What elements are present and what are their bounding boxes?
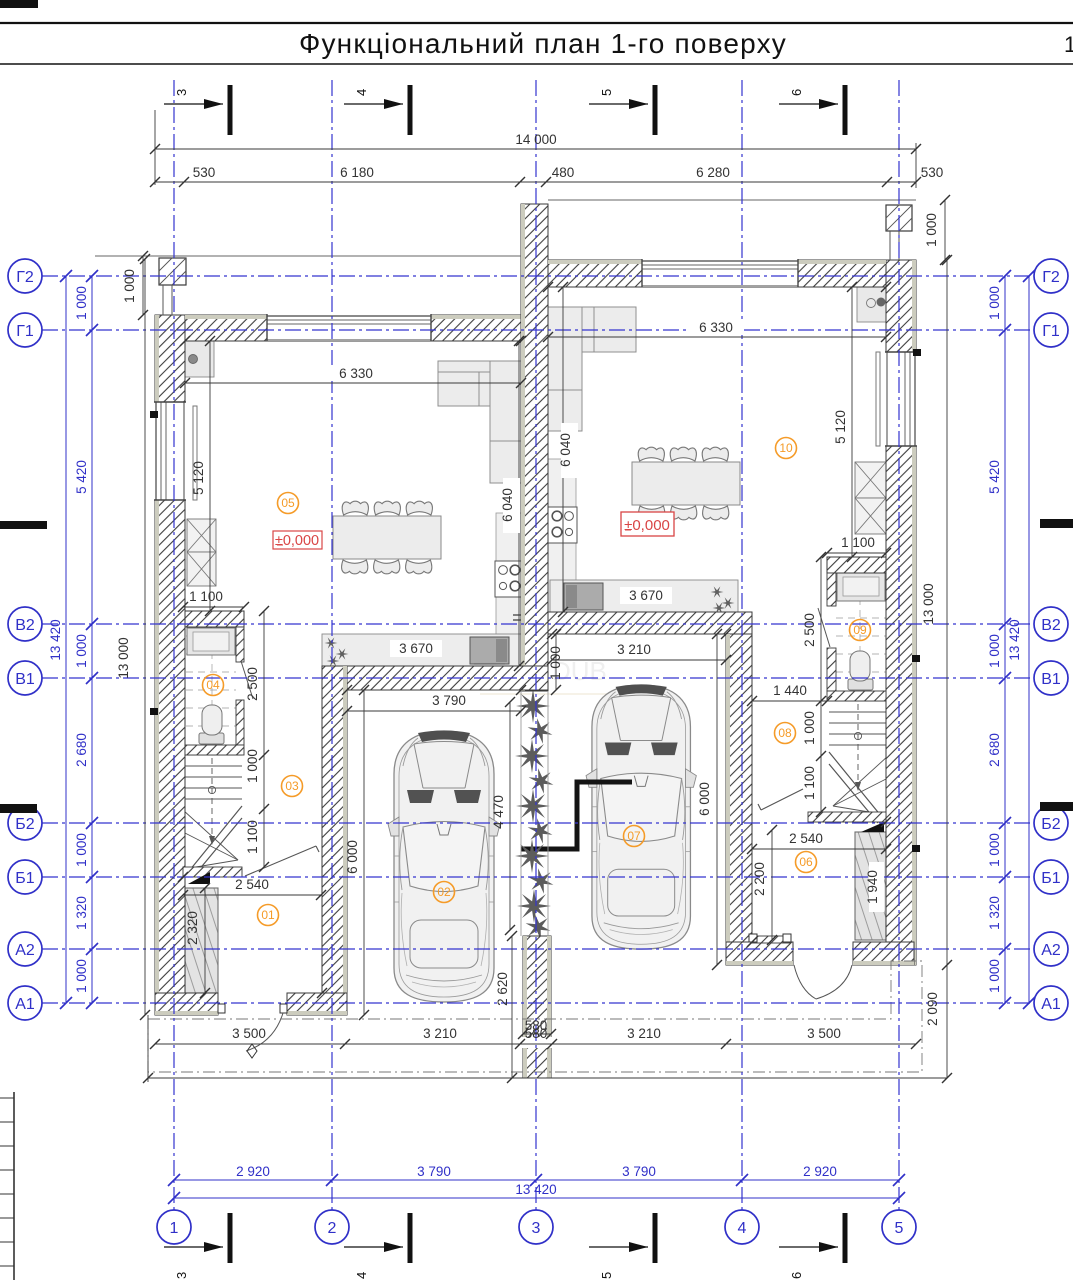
svg-text:1 000: 1 000: [122, 269, 137, 303]
svg-text:А1: А1: [1041, 996, 1061, 1013]
svg-text:03: 03: [285, 779, 299, 793]
svg-text:3: 3: [174, 89, 189, 96]
svg-text:3 670: 3 670: [629, 588, 663, 603]
svg-text:580: 580: [525, 1026, 548, 1041]
svg-text:2 540: 2 540: [235, 877, 269, 892]
svg-text:6: 6: [789, 1272, 804, 1279]
svg-text:Функціональний план 1-го повер: Функціональний план 1-го поверху: [299, 28, 787, 59]
svg-text:2 680: 2 680: [987, 733, 1002, 767]
svg-text:5 420: 5 420: [74, 460, 89, 494]
svg-text:А2: А2: [1041, 942, 1061, 959]
svg-text:13 420: 13 420: [48, 619, 63, 660]
svg-text:1 000: 1 000: [987, 634, 1002, 668]
svg-text:2 320: 2 320: [185, 911, 200, 945]
svg-text:3 210: 3 210: [627, 1026, 661, 1041]
svg-text:5 120: 5 120: [833, 410, 848, 444]
svg-text:±0,000: ±0,000: [624, 517, 670, 534]
svg-text:Г1: Г1: [1042, 323, 1060, 340]
svg-text:1 000: 1 000: [548, 646, 563, 680]
svg-text:1 320: 1 320: [987, 896, 1002, 930]
svg-text:480: 480: [552, 165, 575, 180]
svg-text:14 000: 14 000: [515, 132, 556, 147]
svg-text:1 320: 1 320: [74, 896, 89, 930]
svg-text:1 000: 1 000: [74, 959, 89, 993]
svg-text:Г2: Г2: [16, 269, 34, 286]
svg-text:1 100: 1 100: [189, 589, 223, 604]
svg-text:1 000: 1 000: [924, 213, 939, 247]
svg-text:1 000: 1 000: [74, 286, 89, 320]
svg-text:А1: А1: [15, 996, 35, 1013]
svg-text:1 100: 1 100: [245, 820, 260, 854]
svg-text:В1: В1: [15, 671, 35, 688]
svg-text:5: 5: [599, 1272, 614, 1279]
svg-text:3 210: 3 210: [423, 1026, 457, 1041]
svg-text:±0,000: ±0,000: [275, 533, 319, 549]
svg-text:6 330: 6 330: [699, 320, 733, 335]
svg-text:6 180: 6 180: [340, 165, 374, 180]
svg-text:3 210: 3 210: [617, 642, 651, 657]
svg-text:01: 01: [261, 908, 275, 922]
svg-text:5: 5: [599, 89, 614, 96]
svg-text:6 330: 6 330: [339, 366, 373, 381]
svg-text:1 000: 1 000: [74, 833, 89, 867]
svg-text:6 000: 6 000: [345, 840, 360, 874]
svg-text:13 420: 13 420: [1007, 619, 1022, 660]
svg-text:3 670: 3 670: [399, 641, 433, 656]
svg-text:6: 6: [789, 89, 804, 96]
svg-text:2 540: 2 540: [789, 831, 823, 846]
svg-text:3 790: 3 790: [622, 1164, 656, 1179]
svg-text:09: 09: [853, 623, 867, 637]
svg-text:2 920: 2 920: [236, 1164, 270, 1179]
svg-text:04: 04: [206, 678, 220, 692]
svg-text:3 500: 3 500: [232, 1026, 266, 1041]
svg-text:2: 2: [328, 1220, 337, 1237]
svg-text:3 500: 3 500: [807, 1026, 841, 1041]
svg-text:Б2: Б2: [15, 816, 35, 833]
svg-text:2 920: 2 920: [803, 1164, 837, 1179]
svg-text:4: 4: [738, 1220, 747, 1237]
svg-text:4: 4: [354, 89, 369, 96]
svg-text:3 790: 3 790: [432, 693, 466, 708]
svg-text:3 790: 3 790: [417, 1164, 451, 1179]
svg-text:08: 08: [778, 726, 792, 740]
svg-text:Б1: Б1: [1041, 870, 1061, 887]
svg-text:1 000: 1 000: [245, 749, 260, 783]
svg-text:02: 02: [437, 885, 451, 899]
svg-text:4: 4: [354, 1272, 369, 1279]
svg-text:1 000: 1 000: [987, 286, 1002, 320]
svg-text:1 100: 1 100: [841, 535, 875, 550]
svg-text:1: 1: [170, 1220, 179, 1237]
svg-text:530: 530: [921, 165, 944, 180]
svg-text:6 000: 6 000: [697, 782, 712, 816]
svg-text:13 420: 13 420: [515, 1182, 556, 1197]
svg-text:1: 1: [1064, 32, 1073, 57]
svg-text:4 470: 4 470: [491, 795, 506, 829]
svg-text:530: 530: [193, 165, 216, 180]
svg-text:3: 3: [174, 1272, 189, 1279]
svg-text:5 420: 5 420: [987, 460, 1002, 494]
svg-text:2 620: 2 620: [495, 972, 510, 1006]
svg-text:А2: А2: [15, 942, 35, 959]
svg-text:1 440: 1 440: [773, 683, 807, 698]
svg-text:2 500: 2 500: [802, 613, 817, 647]
svg-text:1 940: 1 940: [865, 870, 880, 904]
svg-text:13 000: 13 000: [116, 637, 131, 678]
svg-text:6 280: 6 280: [696, 165, 730, 180]
svg-text:1 000: 1 000: [74, 634, 89, 668]
svg-text:2 090: 2 090: [925, 992, 940, 1026]
svg-text:В2: В2: [1041, 617, 1061, 634]
svg-text:В1: В1: [1041, 671, 1061, 688]
svg-text:2 500: 2 500: [245, 667, 260, 701]
svg-text:Б2: Б2: [1041, 816, 1061, 833]
svg-text:1 000: 1 000: [802, 711, 817, 745]
svg-text:1 100: 1 100: [802, 766, 817, 800]
svg-text:5: 5: [895, 1220, 904, 1237]
svg-text:В2: В2: [15, 617, 35, 634]
svg-text:07: 07: [627, 829, 641, 843]
svg-text:1 000: 1 000: [987, 959, 1002, 993]
svg-text:2 200: 2 200: [752, 862, 767, 896]
svg-text:13 000: 13 000: [921, 583, 936, 624]
svg-text:Г1: Г1: [16, 323, 34, 340]
svg-text:Г2: Г2: [1042, 269, 1060, 286]
svg-text:3: 3: [532, 1220, 541, 1237]
svg-text:Б1: Б1: [15, 870, 35, 887]
svg-text:05: 05: [281, 496, 295, 510]
svg-text:6 040: 6 040: [558, 433, 573, 467]
svg-text:5 120: 5 120: [191, 461, 206, 495]
svg-text:10: 10: [779, 441, 793, 455]
svg-text:2 680: 2 680: [74, 733, 89, 767]
svg-text:1 000: 1 000: [987, 833, 1002, 867]
svg-text:06: 06: [799, 855, 813, 869]
svg-text:6 040: 6 040: [500, 488, 515, 522]
